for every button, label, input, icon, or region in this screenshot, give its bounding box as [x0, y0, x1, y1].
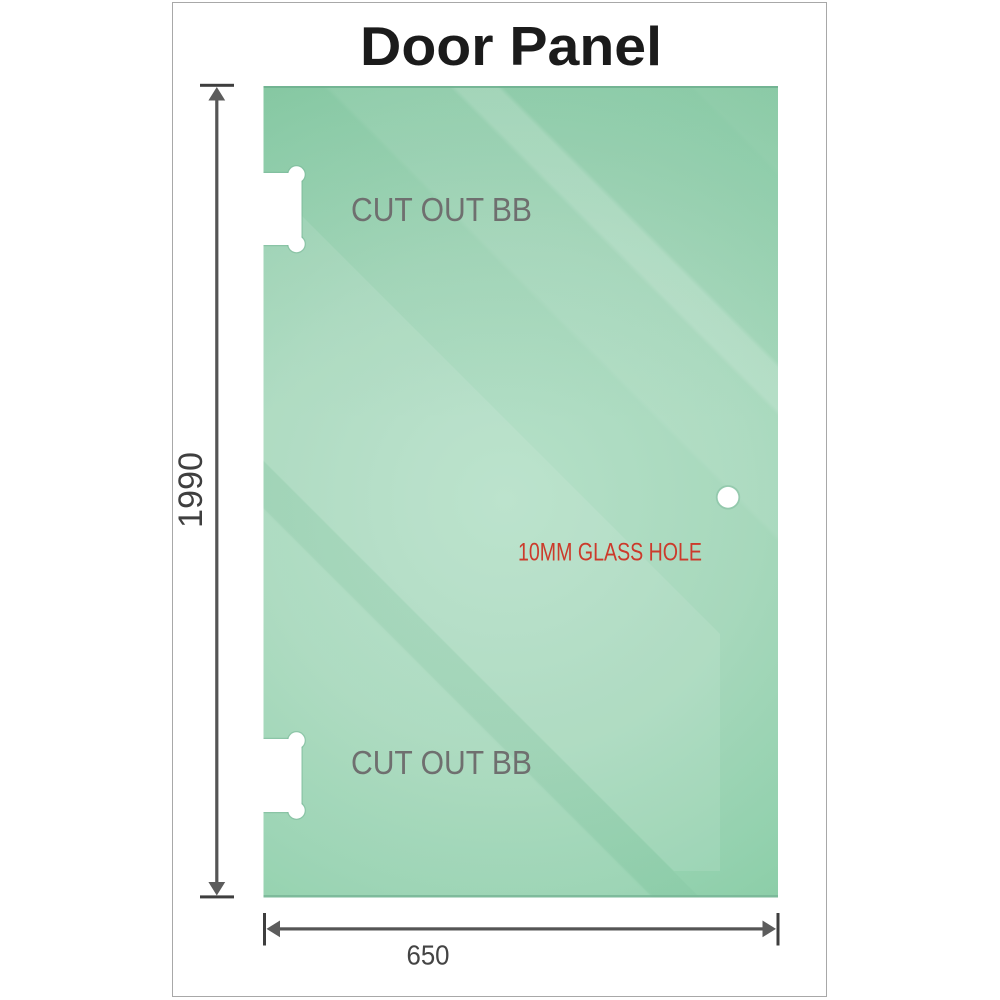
svg-text:Door Panel: Door Panel	[360, 15, 662, 77]
svg-text:1990: 1990	[172, 452, 210, 528]
svg-text:10MM GLASS HOLE: 10MM GLASS HOLE	[518, 539, 702, 567]
svg-text:CUT OUT BB: CUT OUT BB	[351, 744, 532, 781]
svg-text:CUT OUT BB: CUT OUT BB	[351, 191, 532, 228]
svg-text:650: 650	[407, 940, 450, 971]
